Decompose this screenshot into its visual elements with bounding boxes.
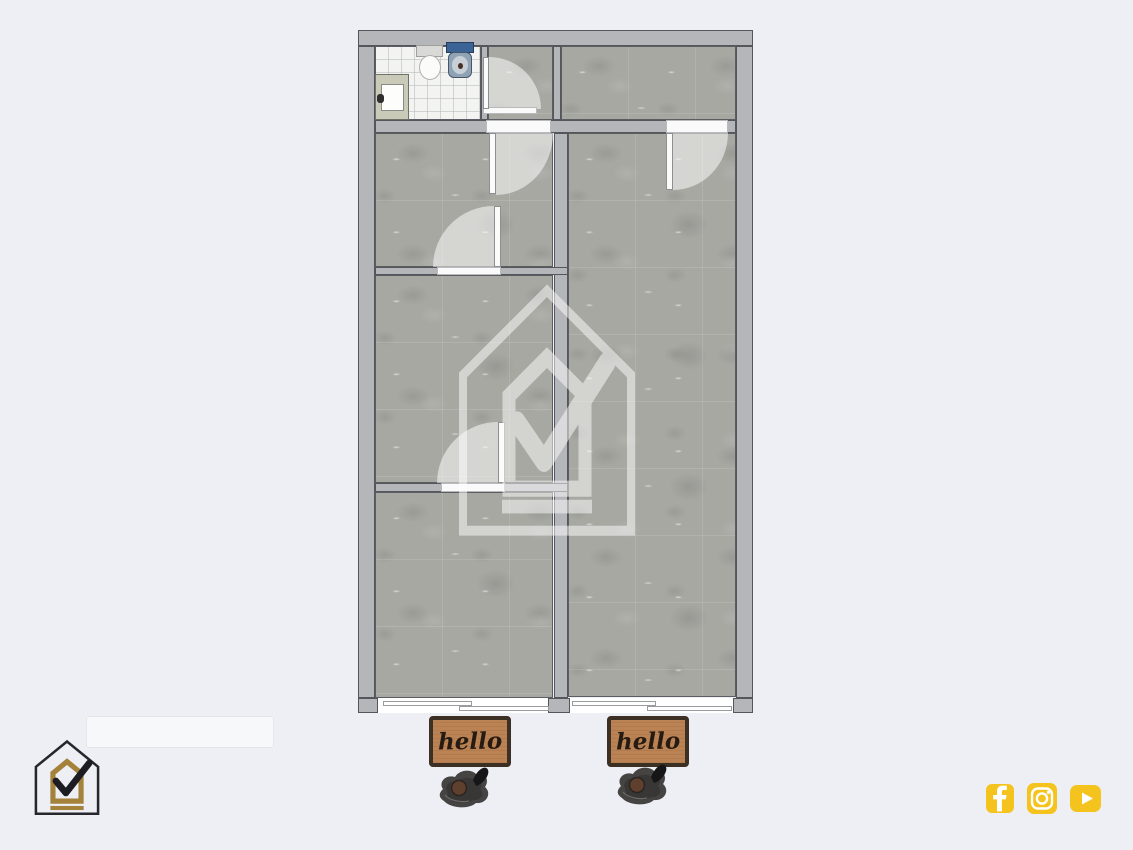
facebook-icon[interactable] — [986, 784, 1014, 813]
door-leaf-right-room — [666, 133, 673, 190]
outer-wall-right — [736, 46, 753, 698]
room-right-large — [568, 133, 736, 697]
door-threshold-right-room — [666, 120, 728, 133]
scene: hello hello — [0, 0, 1133, 850]
sliding-door-panel — [647, 706, 732, 711]
wall-center-vertical — [554, 133, 568, 698]
instagram-icon[interactable] — [1027, 783, 1057, 814]
door-leaf-closet — [483, 57, 489, 109]
door-threshold-closet — [483, 107, 537, 114]
sink-faucet — [377, 94, 384, 103]
social-links — [986, 783, 1101, 814]
door-leaf-middle-left — [489, 133, 496, 194]
outer-wall-top — [358, 30, 753, 46]
door-threshold-row2 — [437, 267, 501, 275]
room-bottom-left — [375, 492, 553, 698]
door-threshold-middle-left — [486, 120, 551, 133]
doormat-text: hello — [438, 729, 503, 753]
washbasin-drain — [458, 63, 463, 69]
door-threshold-row3 — [441, 483, 505, 492]
toilet-bowl — [419, 55, 441, 80]
outer-wall-left — [358, 46, 375, 698]
wall-closet-right — [553, 46, 561, 120]
sliding-door-panel — [572, 701, 656, 706]
sliding-door-panel — [459, 706, 549, 711]
outer-wall-bottom-right-pier — [733, 698, 753, 713]
brand-house-check-logo — [30, 737, 104, 819]
shoes-pair — [433, 760, 493, 812]
room-top-right — [561, 46, 736, 120]
outer-wall-bottom-center-pier — [548, 698, 570, 713]
faint-overlay-box — [86, 716, 274, 748]
outer-wall-bottom-left-pier — [358, 698, 378, 713]
shoes-pair — [611, 757, 671, 809]
door-leaf-row3 — [498, 422, 505, 483]
doormat-text: hello — [616, 729, 681, 753]
bathroom-sink — [381, 84, 404, 111]
youtube-icon[interactable] — [1070, 785, 1101, 812]
door-leaf-row2 — [494, 206, 501, 267]
